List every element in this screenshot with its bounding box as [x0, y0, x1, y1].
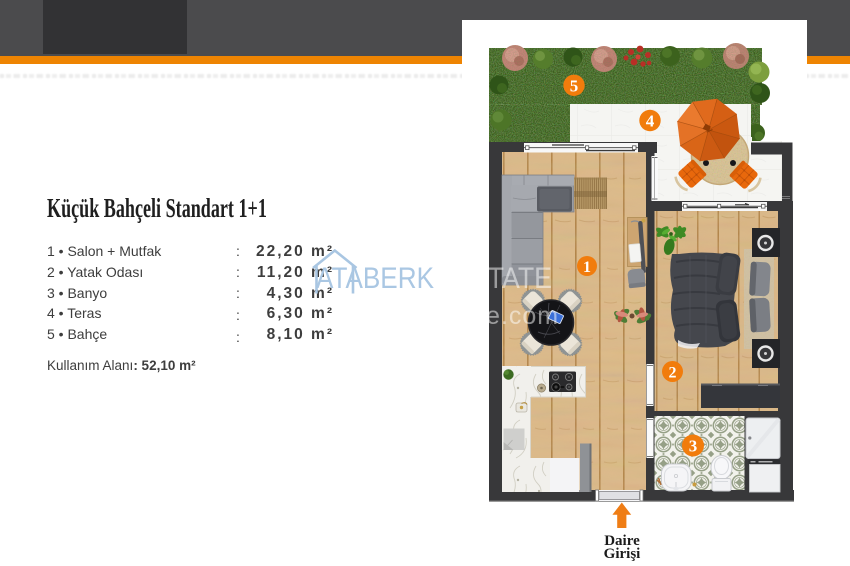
svg-text:1: 1: [583, 259, 591, 276]
svg-text:ESTATE: ESTATE: [452, 262, 552, 295]
svg-text:5: 5: [570, 76, 579, 95]
svg-text:3: 3: [689, 437, 698, 456]
svg-text:4: 4: [646, 112, 655, 131]
svg-text:2: 2: [669, 364, 677, 381]
svg-text:e.com: e.com: [486, 302, 559, 330]
svg-text:ATABERK: ATABERK: [316, 262, 434, 295]
